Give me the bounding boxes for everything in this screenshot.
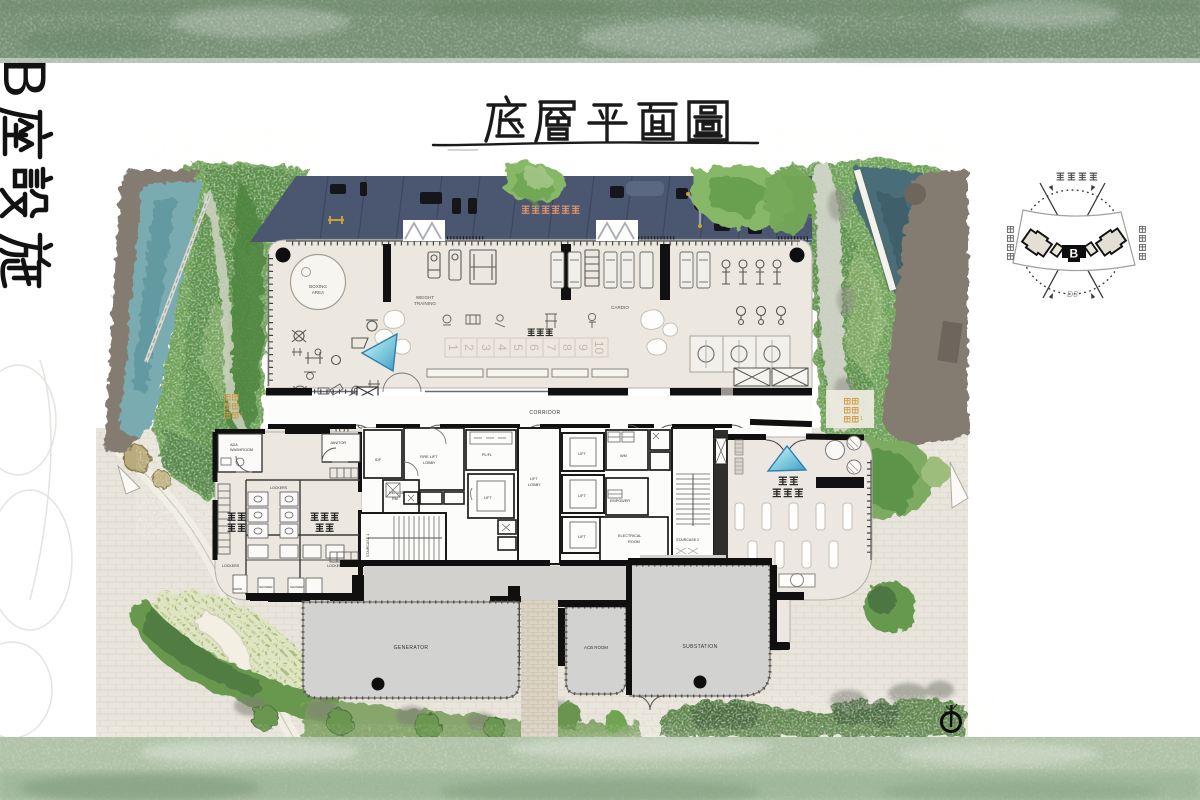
- svg-text:8: 8: [560, 344, 574, 351]
- svg-text:LIFT: LIFT: [530, 477, 538, 481]
- svg-text:10: 10: [592, 341, 606, 355]
- svg-text:ADA: ADA: [230, 443, 238, 447]
- svg-text:LOBBY: LOBBY: [528, 483, 541, 487]
- svg-text:9: 9: [576, 344, 590, 351]
- svg-text:ROOM: ROOM: [628, 540, 640, 544]
- svg-text:LOBBY: LOBBY: [423, 461, 436, 465]
- svg-text:1: 1: [240, 412, 243, 418]
- svg-text:WASHROOM: WASHROOM: [230, 448, 253, 452]
- svg-text:FIRE LIFT: FIRE LIFT: [420, 455, 438, 459]
- svg-text:WM: WM: [620, 454, 627, 458]
- svg-text:3: 3: [479, 344, 493, 351]
- svg-text:4: 4: [495, 344, 509, 351]
- svg-text:CORRIDOR: CORRIDOR: [529, 410, 560, 416]
- svg-text:B: B: [1070, 247, 1079, 261]
- svg-text:SUBSTATION: SUBSTATION: [682, 644, 717, 650]
- svg-text:STAIRCASE 2: STAIRCASE 2: [676, 538, 699, 542]
- svg-text:1: 1: [446, 344, 460, 351]
- svg-text:JANITOR: JANITOR: [330, 441, 346, 445]
- svg-text:SHWR: SHWR: [233, 587, 243, 591]
- svg-text:ELECTRICAL: ELECTRICAL: [618, 534, 641, 538]
- svg-text:STAIRCASE 1: STAIRCASE 1: [366, 534, 370, 557]
- svg-text:LIFT: LIFT: [578, 494, 586, 498]
- svg-text:2: 2: [462, 344, 476, 351]
- svg-text:IDF: IDF: [375, 458, 382, 462]
- svg-text:1: 1: [860, 416, 863, 422]
- svg-text:LOCKERS: LOCKERS: [222, 564, 240, 568]
- svg-text:6: 6: [527, 344, 541, 351]
- svg-text:AREA: AREA: [312, 290, 325, 295]
- svg-text:ACB ROOM: ACB ROOM: [584, 645, 608, 650]
- svg-text:WEIGHT: WEIGHT: [416, 295, 435, 300]
- svg-text:SHOWER: SHOWER: [259, 585, 273, 589]
- svg-text:5: 5: [511, 344, 525, 351]
- svg-text:LIFT: LIFT: [484, 496, 492, 500]
- svg-text:GENERATOR: GENERATOR: [394, 645, 429, 651]
- svg-text:B: B: [0, 58, 58, 98]
- svg-text:PL/FL: PL/FL: [482, 453, 492, 457]
- svg-text:SHOWER: SHOWER: [290, 585, 304, 589]
- svg-text:LIFT: LIFT: [578, 452, 586, 456]
- svg-text:LIFT: LIFT: [578, 535, 586, 539]
- svg-text:RM: RM: [392, 497, 398, 501]
- svg-text:LOCKERS: LOCKERS: [270, 486, 288, 490]
- svg-text:7: 7: [544, 344, 558, 351]
- svg-text:EMPOWER: EMPOWER: [610, 499, 630, 503]
- svg-text:D3: D3: [1067, 289, 1078, 299]
- svg-text:TRAINING: TRAINING: [414, 301, 436, 306]
- svg-text:CARDIO: CARDIO: [611, 305, 629, 310]
- svg-text:BOXING: BOXING: [309, 284, 327, 289]
